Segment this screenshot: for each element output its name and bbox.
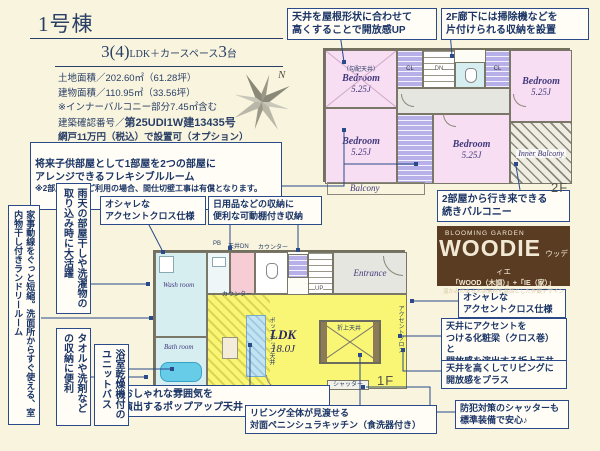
room-label: Bedroom — [522, 76, 560, 87]
brand-name-row: WOODIE ウッディエ — [437, 237, 570, 279]
coffered-ceiling: 折上天井 — [319, 320, 381, 364]
counter-top-label: カウンター — [258, 242, 288, 251]
closet-label: CL — [406, 66, 414, 72]
plan-type-line: 3(4)LDK＋カースペース3台 — [55, 42, 283, 62]
approval-number: 第25UDI1W建13435号 — [125, 117, 236, 129]
closet-2f-left: CL — [397, 50, 423, 88]
bath-room-label: Bath room — [164, 343, 194, 351]
washing-machine-icon — [159, 256, 174, 273]
car-space-count: 3 — [218, 42, 227, 61]
spec-approval: 建築確認番号／第25UDI1W建13435号 — [58, 116, 249, 132]
beam-bar — [321, 322, 327, 362]
counter-label: カウンター — [222, 289, 252, 298]
coffered-label: 折上天井 — [337, 323, 361, 332]
brand-name: WOODIE — [439, 235, 541, 261]
vanity-1f — [207, 252, 230, 294]
car-space-unit: 台 — [227, 49, 237, 60]
popup-ceiling-area — [246, 315, 266, 377]
compass-north-label: N — [277, 69, 286, 81]
bedroom-2f-southwest: Bedroom 5.25J — [325, 108, 397, 184]
spec-building-area: 建物面積／110.95㎡（33.56坪） — [58, 87, 249, 102]
compass-icon: N — [230, 68, 294, 134]
room-size: 5.25J — [462, 150, 482, 160]
stairs-dn-label: DN — [435, 66, 444, 72]
pb-label: PB — [213, 241, 221, 247]
callout-high-ceiling: 天井を高くしてリビングに 開放感をプラス — [441, 360, 567, 389]
callout-hall-storage: 2F廊下には掃除機などを 片付けられる収納を設置 — [441, 8, 589, 40]
callout-flexible-room-text: 将来子供部屋として1部屋を2つの部屋に アレンジできるフレキシブルルーム — [35, 159, 216, 183]
stairs-1f: UP — [308, 252, 333, 294]
beam-bar — [373, 322, 379, 362]
room-label: Bedroom — [342, 136, 380, 147]
toilet-icon — [465, 68, 477, 83]
ceiling-dn-label: 天井DN — [228, 241, 249, 250]
brand-formula: 「WOOD（木調）」+「IE（家）」 — [437, 279, 570, 288]
flyer-canvas: 1号棟 3(4)LDK＋カースペース3台 土地面積／202.60㎡（61.28坪… — [0, 0, 600, 451]
wash-room-label: Wash room — [163, 281, 194, 289]
sloped-ceiling-note: （勾配天井） — [343, 64, 379, 73]
bedroom-2f-southeast: Bedroom 5.25J — [433, 114, 510, 184]
callout-towel-storage: タオルや洗剤などの収納に便利 — [56, 328, 91, 426]
closet-2f-right: CL — [485, 50, 510, 88]
storage-1f — [288, 254, 308, 278]
room-size: 5.25J — [351, 147, 371, 157]
bath-room-1f: Bath room — [155, 337, 207, 389]
callout-accent-cross-wash: オシャレな アクセントクロス仕様 — [100, 196, 206, 225]
toilet-icon — [266, 263, 278, 279]
toilet-2f — [455, 62, 485, 88]
entrance-label: Entrance — [354, 268, 387, 278]
balcony-2f: Balcony — [327, 182, 425, 195]
balcony-label: Balcony — [350, 183, 380, 193]
callout-rainy-day: 雨天の部屋干しや洗濯物の取り込み時に大活躍 — [56, 183, 91, 314]
bathtub-icon — [160, 362, 202, 382]
callout-shutter: 防犯対策のシャッターも 標準装備で安心♪ — [455, 400, 569, 429]
floor-label-2f: 2F — [551, 180, 568, 195]
room-label: Bedroom — [453, 139, 491, 150]
closet-label: CL — [494, 66, 502, 72]
closet-2f-center — [397, 114, 433, 184]
stairs-up-label: UP — [315, 286, 323, 292]
spec-balcony-note: ※インナーバルコニー部分7.45㎡含む — [58, 101, 249, 116]
bedroom-2f-northeast: Bedroom 5.25J — [510, 50, 572, 122]
header-divider-2 — [55, 66, 283, 67]
kitchen-island — [222, 337, 238, 359]
toilet-1f — [255, 252, 288, 294]
accent-cross-label: アクセントクロス — [396, 305, 405, 353]
plan-ldk-text: LDK＋カースペース — [129, 49, 218, 60]
brand-box: BLOOMING GARDEN WOODIE ウッディエ 「WOOD（木調）」+… — [437, 226, 570, 286]
inner-balcony-label: Inner Balcony — [516, 149, 566, 158]
wash-room-1f: Wash room — [155, 252, 207, 337]
building-number: 1号棟 — [38, 8, 94, 38]
powder-room-1f — [230, 252, 255, 294]
callout-sloped-ceiling: 天井を屋根形状に合わせて 高くすることで開放感UP — [287, 8, 437, 40]
floor-label-1f: 1F — [377, 373, 394, 388]
shutter-chip: シャッター — [327, 380, 369, 390]
callout-unit-bath: 浴室乾燥機付のユニットバス — [94, 344, 129, 426]
stairs-2f: DN — [423, 50, 455, 88]
bedroom-2f-northwest: （勾配天井） Bedroom 5.25J — [325, 50, 397, 108]
callout-peninsula-kitchen: リビング全体が見渡せる 対面ペニンシュラキッチン（食洗器付き） — [245, 405, 437, 434]
sloped-ceiling-lines — [326, 51, 396, 107]
room-size: 5.25J — [531, 87, 551, 97]
brand-tagline: 温かみのある木調素材を基調とした外観デザイン — [437, 288, 570, 296]
inner-balcony-2f: Inner Balcony — [510, 122, 572, 184]
approval-label: 建築確認番号／ — [58, 118, 125, 129]
spec-land-area: 土地面積／202.60㎡（61.28坪） — [58, 72, 249, 87]
plan-ldk-count: 3(4) — [101, 42, 129, 61]
spec-list: 土地面積／202.60㎡（61.28坪） 建物面積／110.95㎡（33.56坪… — [58, 72, 249, 146]
callout-laundry-room: 家事動線をぐっと短縮。洗面所からすぐ使える、室内物干し付きランドリールーム — [8, 205, 40, 425]
floor-plan-2f: （勾配天井） Bedroom 5.25J CL DN CL Bedroom 5.… — [323, 48, 570, 182]
header-divider-1 — [30, 38, 283, 39]
popup-ceiling-label: ポップアップ天井 — [267, 317, 276, 365]
wash-basin-icon — [212, 257, 226, 267]
floor-plan-1f: Wash room Bath room UP Entrance ポップアップ天井 — [153, 250, 405, 387]
callout-movable-shelf: 日用品などの収納に 便利な可動棚付き収納 — [208, 196, 322, 225]
